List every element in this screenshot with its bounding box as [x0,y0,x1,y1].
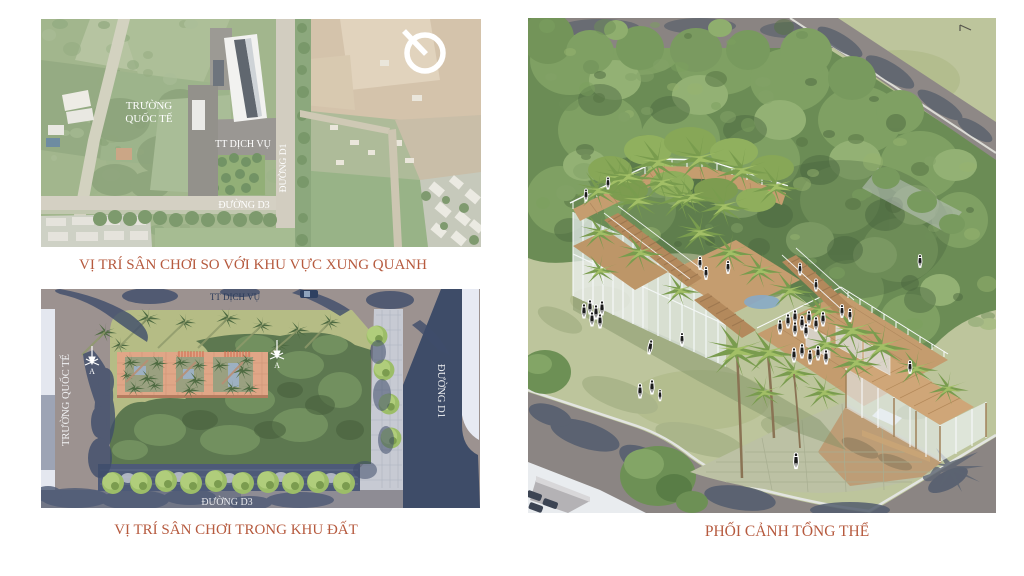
svg-text:ĐƯỜNG D1: ĐƯỜNG D1 [435,364,447,418]
svg-text:TT DỊCH VỤ: TT DỊCH VỤ [210,292,261,302]
svg-text:VỊ TRÍ SÂN CHƠI SO VỚI KHU VỰC: VỊ TRÍ SÂN CHƠI SO VỚI KHU VỰC XUNG QUAN… [79,256,427,273]
svg-text:ĐƯỜNG D3: ĐƯỜNG D3 [201,496,252,508]
svg-text:TT DỊCH VỤ: TT DỊCH VỤ [215,139,272,150]
svg-text:ĐƯỜNG D1: ĐƯỜNG D1 [277,143,289,192]
svg-text:TRƯỜNG: TRƯỜNG [126,100,172,112]
svg-text:TRƯỜNG QUỐC TẾ: TRƯỜNG QUỐC TẾ [59,354,72,446]
svg-text:A: A [89,367,95,376]
svg-text:A: A [274,361,280,370]
svg-text:VỊ TRÍ SÂN CHƠI TRONG KHU ĐẤT: VỊ TRÍ SÂN CHƠI TRONG KHU ĐẤT [114,521,358,538]
svg-text:ĐƯỜNG D3: ĐƯỜNG D3 [218,199,269,211]
svg-text:PHỐI CẢNH TỔNG THỂ: PHỐI CẢNH TỔNG THỂ [705,522,869,540]
svg-text:QUỐC TẾ: QUỐC TẾ [125,112,172,125]
